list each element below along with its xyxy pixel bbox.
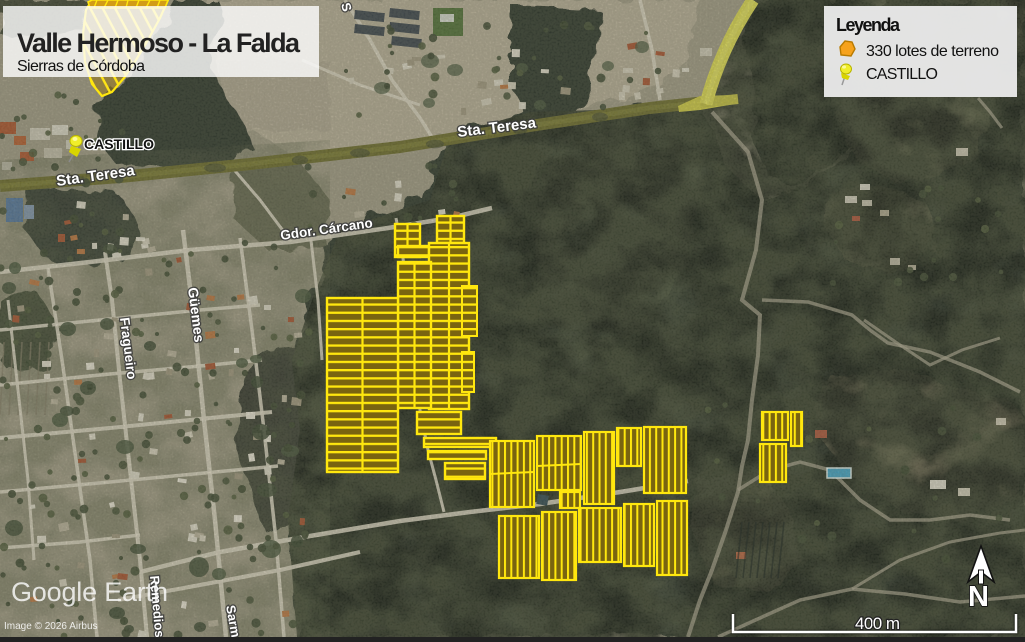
- svg-text:Google Earth: Google Earth: [11, 577, 168, 607]
- svg-text:Valle Hermoso - La Falda: Valle Hermoso - La Falda: [17, 28, 301, 58]
- svg-text:N: N: [968, 581, 989, 613]
- svg-text:CASTILLO: CASTILLO: [866, 66, 938, 83]
- svg-text:Sierras de Córdoba: Sierras de Córdoba: [17, 58, 145, 75]
- svg-text:400 m: 400 m: [855, 614, 900, 633]
- svg-text:CASTILLO: CASTILLO: [84, 136, 154, 152]
- svg-text:330 lotes de terreno: 330 lotes de terreno: [866, 43, 999, 60]
- svg-text:Image © 2026 Airbus: Image © 2026 Airbus: [4, 621, 98, 632]
- svg-text:Leyenda: Leyenda: [836, 15, 901, 35]
